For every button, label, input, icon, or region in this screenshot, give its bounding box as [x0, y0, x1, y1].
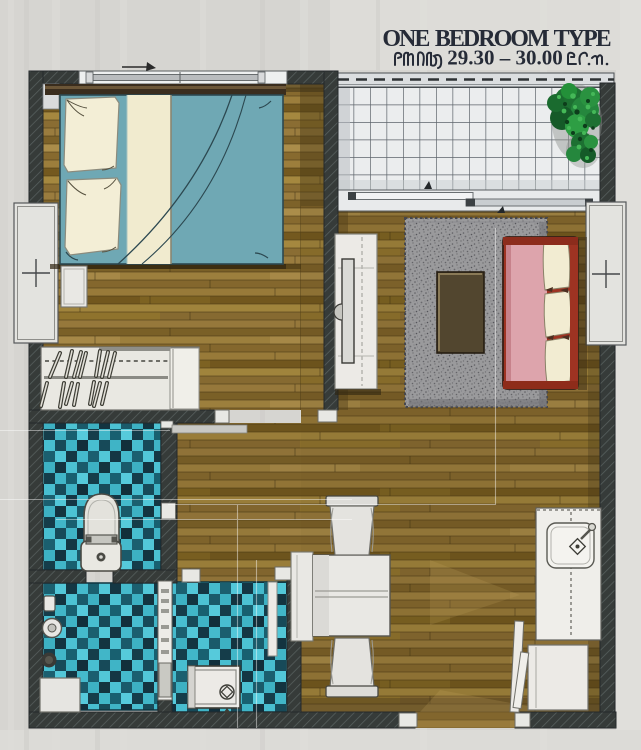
- svg-text:29.30 – 30.00: 29.30 – 30.00: [447, 46, 563, 70]
